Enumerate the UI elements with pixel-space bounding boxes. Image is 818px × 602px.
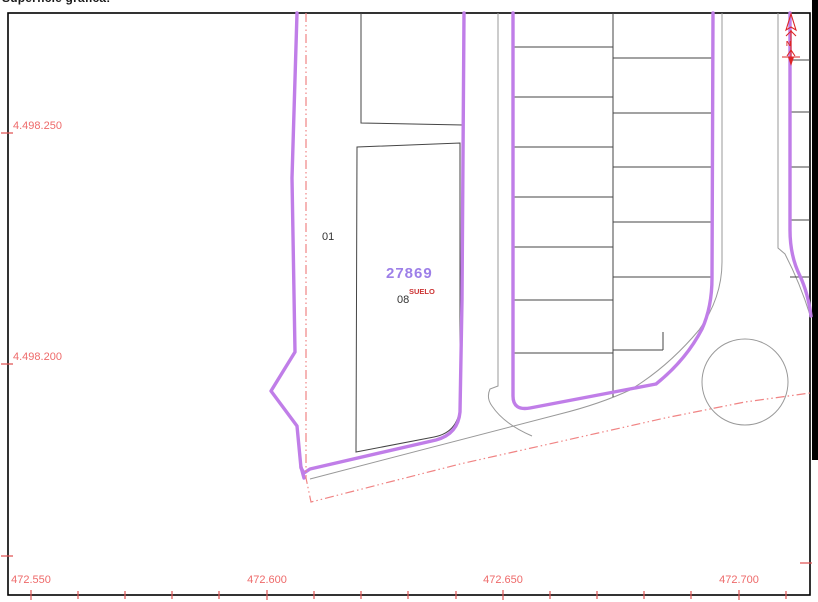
land-use-label: SUELO (409, 287, 435, 296)
x-axis-label-472650: 472.650 (483, 574, 523, 586)
window-edge-strip (812, 0, 818, 460)
municipal-boundary-dashdot-line (306, 13, 810, 502)
terrace-dividers-right (613, 58, 712, 350)
road-edge-west (488, 13, 532, 436)
x-axis-label-472550: 472.550 (11, 574, 51, 586)
y-axis-label-4498200: 4.498.200 (13, 351, 62, 363)
x-axis-label-472600: 472.600 (247, 574, 287, 586)
west-boundary-line (271, 13, 464, 473)
road-edge-east (778, 13, 810, 315)
axis-ticks (1, 133, 812, 600)
west-boundary-stub (301, 467, 304, 478)
adjacent-parcel-code: 01 (322, 231, 334, 243)
north-letter: N (786, 41, 791, 48)
subparcel-code-label: 08 (397, 294, 409, 306)
terrace-dividers-left (513, 47, 613, 353)
parcel-boundary-lines (310, 13, 810, 479)
road-edge-diagonal (310, 13, 722, 479)
y-axis-label-4498250: 4.498.250 (13, 120, 62, 132)
upper-parcel-outline (361, 13, 463, 125)
parcel-number-label[interactable]: 27869 (386, 265, 433, 282)
urban-boundary-lines (271, 13, 811, 478)
roundabout-circle (702, 339, 788, 425)
x-axis-label-472700: 472.700 (719, 574, 759, 586)
clipped-surface-title: Superficie gráfica: (2, 0, 111, 5)
cadastral-map-viewport[interactable]: Superficie gráfica: 4.498.250 4.498.200 … (0, 0, 818, 602)
terrace-dividers-far-right (790, 60, 810, 277)
